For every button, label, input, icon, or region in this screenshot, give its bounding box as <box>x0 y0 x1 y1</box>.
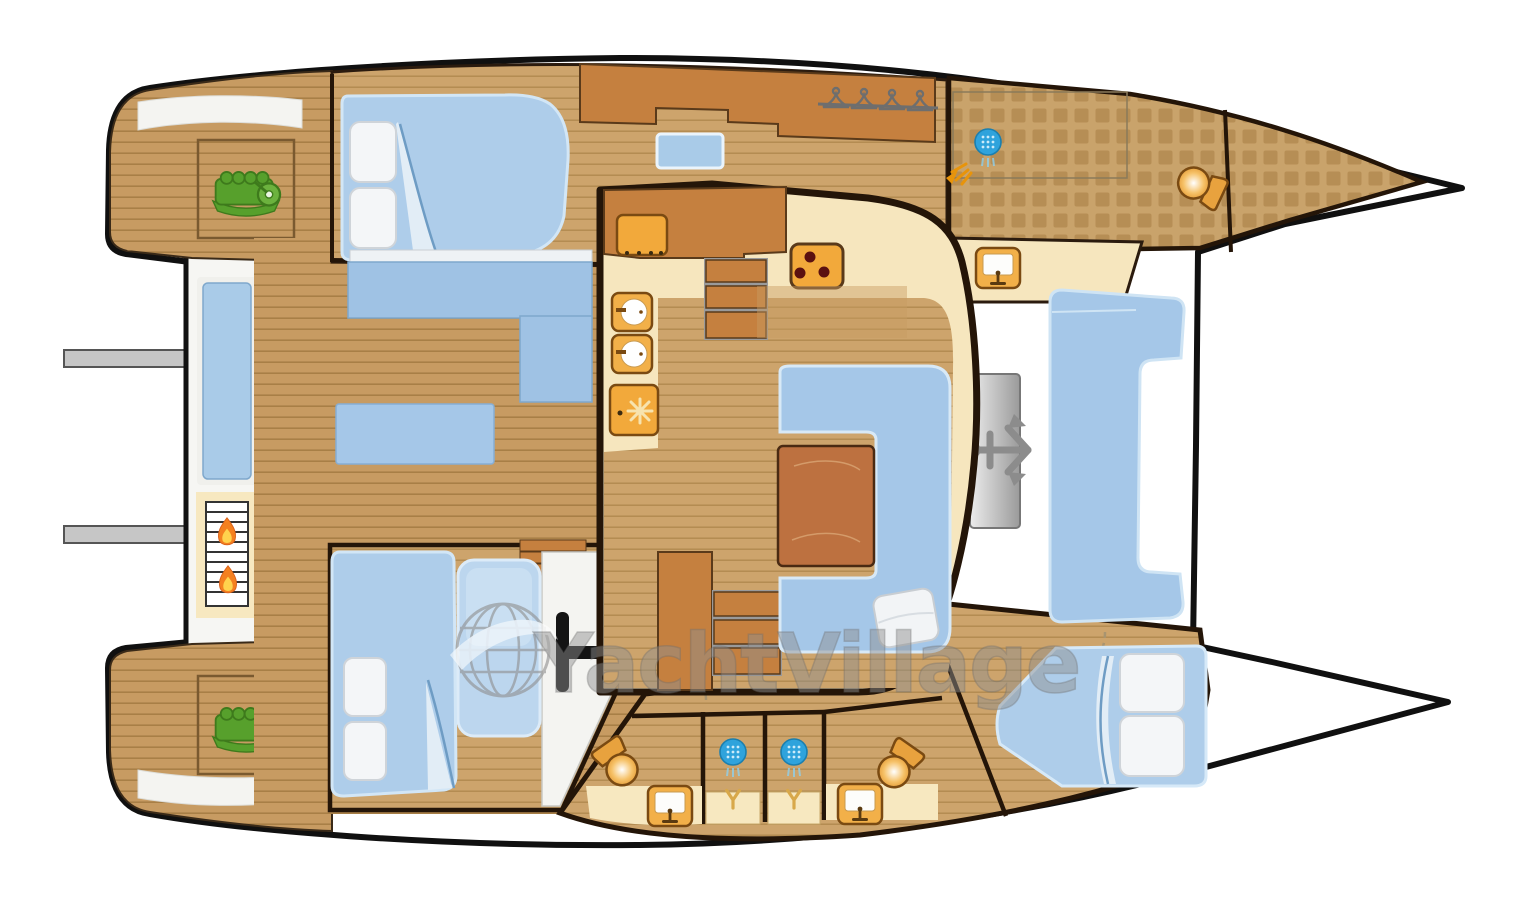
pillow <box>1120 654 1184 712</box>
hatch-seat <box>657 134 723 168</box>
salon-table <box>778 446 874 566</box>
oven-icon <box>617 215 667 255</box>
cockpit-window <box>203 283 251 479</box>
galley-counter <box>757 286 907 338</box>
davit-bars <box>64 350 190 543</box>
watermark-text: YachtVillage <box>533 617 1079 712</box>
stove-icon <box>791 244 843 288</box>
aft-platform <box>186 250 258 650</box>
companionway-step <box>520 540 586 551</box>
pillow <box>350 188 396 248</box>
owner-cabin-bed <box>342 95 568 260</box>
yacht-floorplan-image: YachtVillage <box>0 0 1526 900</box>
bbq-grill-icon <box>206 502 248 606</box>
port-aft-deck <box>110 71 332 262</box>
pillow <box>344 658 386 716</box>
sink-icon <box>648 786 692 826</box>
sink-icon <box>976 248 1020 288</box>
salon <box>600 184 977 692</box>
pillow <box>350 122 396 182</box>
aft-cabin-bed <box>332 552 456 796</box>
watermark: YachtVillage <box>450 604 1079 712</box>
cockpit-seat <box>336 404 494 464</box>
sink-icon <box>838 784 882 824</box>
pillow <box>1120 716 1184 776</box>
pillow <box>344 722 386 780</box>
engine-icon <box>213 172 280 216</box>
fridge-snowflake-icon <box>610 385 658 435</box>
catamaran-deck-plan: YachtVillage <box>0 0 1526 900</box>
